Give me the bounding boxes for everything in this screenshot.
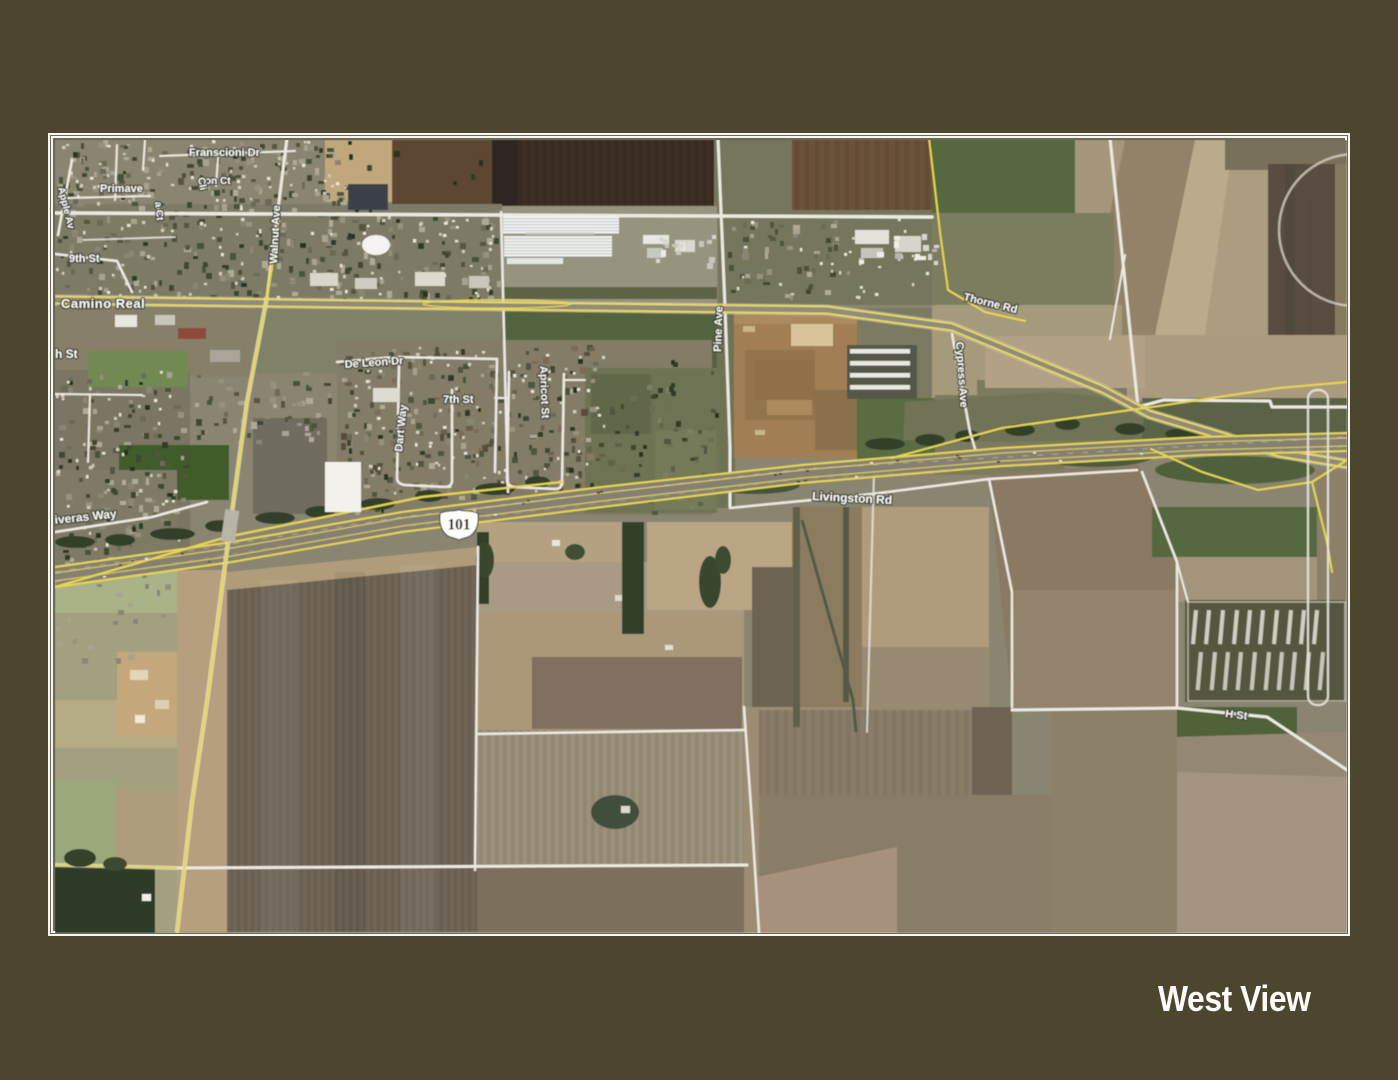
svg-text:Apricot St: Apricot St: [537, 366, 551, 419]
svg-text:Pine Ave: Pine Ave: [712, 306, 726, 352]
svg-text:7th St: 7th St: [443, 394, 474, 406]
svg-text:Camino Real: Camino Real: [61, 296, 145, 311]
svg-text:101: 101: [448, 517, 471, 534]
svg-text:9th St: 9th St: [69, 253, 100, 265]
svg-text:on Ct: on Ct: [205, 176, 231, 187]
svg-text:a Ct: a Ct: [152, 201, 165, 222]
svg-text:h St: h St: [55, 347, 78, 361]
svg-text:Franscioni Dr: Franscioni Dr: [189, 147, 261, 159]
svg-text:Cli: Cli: [195, 177, 208, 192]
svg-text:Primave: Primave: [100, 183, 143, 195]
